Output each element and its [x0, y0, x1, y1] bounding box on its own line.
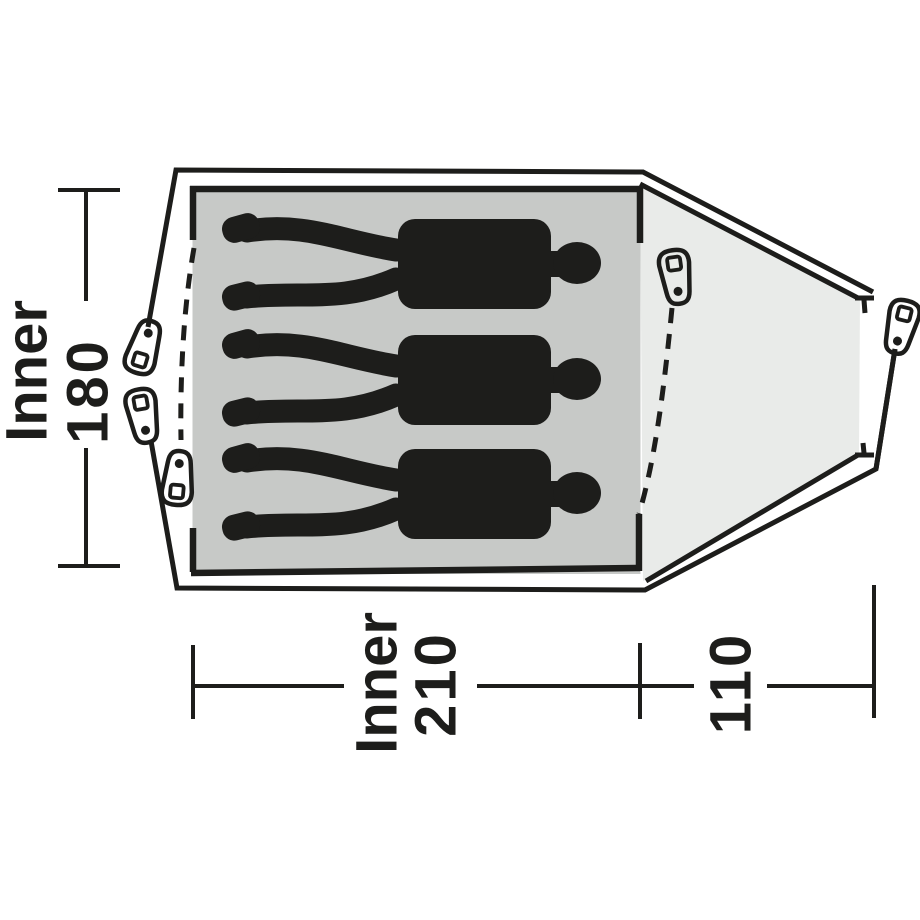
- tent-floorplan-page: Inner 180 Inner 210 110: [0, 0, 920, 920]
- tent-floorplan-diagram: Inner 180 Inner 210 110: [0, 0, 920, 920]
- porch-top-tab-stub: [864, 300, 865, 313]
- porch-bottom-tab-stub: [863, 443, 864, 453]
- dim-label-porch-depth-value: 110: [699, 632, 764, 735]
- dimension-bottom: Inner 210 110: [193, 585, 874, 754]
- dim-label-inner-width-value: 180: [56, 338, 121, 444]
- dim-label-inner-length-prefix: Inner: [345, 612, 410, 754]
- dimension-inner-width: Inner 180: [0, 190, 121, 566]
- peg-left-lower: [124, 387, 163, 445]
- dim-label-inner-width-prefix: Inner: [0, 300, 60, 442]
- dim-label-inner-length-value: 210: [404, 631, 469, 737]
